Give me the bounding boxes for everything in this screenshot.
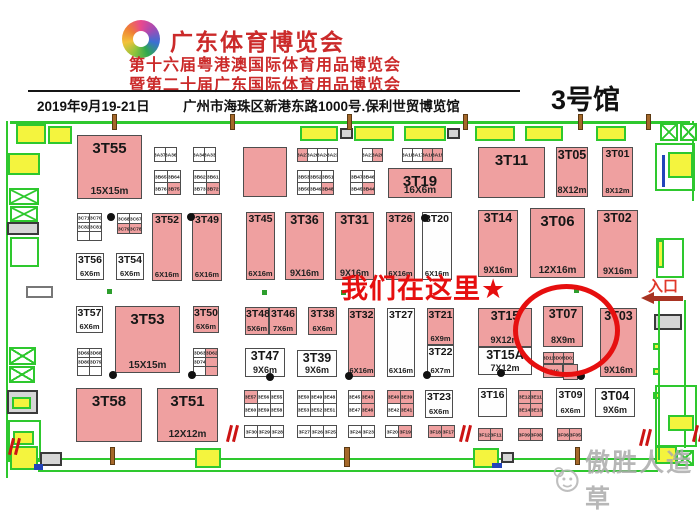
booth-label: 3T23 [426, 391, 452, 403]
booth-cell-3E46: 3E46 [361, 403, 375, 417]
booth-cell-3E48: 3E48 [323, 390, 337, 404]
booth-3T32: 3T326X16m [348, 308, 375, 377]
stairs-icon [680, 123, 697, 141]
booth-cell-3F17: 3F17 [441, 425, 455, 438]
booth-label: 3T14 [479, 211, 517, 225]
booth-cell-3E45: 3E45 [348, 390, 362, 404]
booth-size: 6X16m [247, 269, 274, 278]
booth-size: 6X6m [77, 322, 102, 331]
exit-door-icon [692, 424, 700, 444]
door-block [525, 126, 563, 141]
booth-size: 6X16m [388, 366, 414, 375]
booth-cell-group: 3A273A263A243A23 [297, 148, 337, 162]
utility-block [501, 452, 514, 463]
stairs-icon [10, 206, 38, 222]
booth-cell-3F30: 3F30 [244, 425, 258, 438]
booth-cell-3C78: 3C78 [129, 223, 142, 234]
booth-cell-group: 3F273F263F25 [297, 425, 336, 438]
booth-cell-3F27: 3F27 [297, 425, 311, 438]
booth-cell-3E56: 3E56 [257, 390, 271, 404]
booth-cell-3E41: 3E41 [400, 403, 414, 417]
exit-door-icon [8, 437, 22, 457]
room-outline [10, 237, 39, 267]
booth-label: 3T49 [193, 214, 221, 226]
pillar [112, 114, 117, 130]
booth-cell-3E40: 3E40 [387, 390, 401, 404]
column-dot [497, 369, 505, 377]
booth-label: 3T53 [116, 307, 179, 328]
booth-cell-3A36: 3A36 [165, 147, 177, 162]
booth-3T45: 3T456X16m [246, 212, 275, 280]
column-dot [345, 372, 353, 380]
watermark: 傲胜人造草 [552, 443, 700, 515]
booth-size: 9X6m [298, 365, 336, 375]
booth-label: 3T45 [247, 213, 274, 225]
booth-cell-3F08: 3F08 [530, 428, 543, 441]
booth-size: 6X16m [193, 270, 221, 279]
booth-cell-3B73: 3B73 [193, 182, 207, 195]
booth-size: 6X6m [309, 324, 336, 333]
booth-cell-group: 3F183F17 [428, 425, 454, 438]
column-dot [188, 371, 196, 379]
booth-3T23: 3T236X6m [425, 390, 453, 418]
pillar [230, 114, 235, 130]
booth-size: 6X16m [153, 270, 181, 279]
column-marker [262, 290, 267, 295]
booth-cell-3A15: 3A15 [432, 148, 443, 162]
booth-3T04: 3T049X6m [595, 388, 635, 417]
door-block [653, 368, 660, 375]
entrance-arrow-icon [641, 292, 683, 305]
booth-cell-group: 3D633D623D74 [193, 348, 217, 376]
booth-label: 3T58 [77, 389, 141, 410]
booth-3T39: 3T399X6m [297, 350, 337, 377]
booth-label: 3T57 [77, 307, 102, 319]
booth-label: 3T04 [596, 389, 634, 403]
booth-cell-3E59: 3E59 [257, 403, 271, 417]
column-dot [187, 213, 195, 221]
booth-cell-3F05: 3F05 [569, 428, 582, 441]
booth-3T52: 3T526X16m [152, 213, 182, 281]
booth-label: 3T02 [598, 211, 637, 225]
booth-3T09: 3T096X6m [556, 388, 585, 417]
door-block [653, 343, 660, 350]
booth-size: 6X6m [117, 269, 143, 278]
booth-cell-3E50: 3E50 [297, 390, 311, 404]
booth-size: 16X6m [389, 185, 451, 196]
booth-cell-group: 3A213A20 [362, 148, 382, 162]
door-block [195, 448, 221, 468]
expo-floorplan-page: 广东体育博览会 第十六届粤港澳国际体育用品博览会 暨第二十届广东国际体育用品博览… [0, 0, 700, 495]
door-block [657, 240, 664, 268]
pillar [646, 114, 651, 130]
booth-cell-group: 3B653B643B763B75 [154, 170, 180, 195]
booth-3T47: 3T479X6m [245, 348, 285, 377]
booth-cell-unlabeled [89, 231, 102, 241]
booth-cell-3F24: 3F24 [348, 425, 362, 438]
column-dot [107, 213, 115, 221]
entrance-arrow-shaft [653, 296, 683, 301]
booth-cell-3A20: 3A20 [372, 148, 383, 162]
booth-3T21: 3T216X9m [427, 308, 454, 345]
booth-cell-3F29: 3F29 [257, 425, 271, 438]
door-block [596, 126, 626, 141]
booth-cell-group: 3D693D683D803D79 [77, 348, 101, 376]
booth-size: 9X16m [601, 365, 636, 375]
booth-label: 3T39 [298, 351, 336, 365]
booth-cell-3E11: 3E11 [530, 390, 543, 404]
booth-size: 8X12m [557, 185, 587, 195]
booth-label: 3T26 [387, 213, 414, 225]
booth-3T05: 3T058X12m [556, 147, 588, 197]
booth-cell-group: 3E573E563E553E603E593E58 [244, 390, 283, 417]
booth-label: 3T52 [153, 214, 181, 226]
booth-cell-group: 3C713C703C823C81 [77, 213, 101, 241]
booth-label: 3T38 [309, 308, 336, 320]
floorplan: 我们在这里★ 入口 傲胜人造草 3T5515X15m3T113T058X12m3… [0, 0, 700, 495]
booth-cell-3E43: 3E43 [361, 390, 375, 404]
booth-label: 3T05 [557, 148, 587, 162]
booth-cell-group: 3E453E433E473E46 [348, 390, 374, 417]
booth-label: 3T54 [117, 254, 143, 266]
watermark-text: 傲胜人造草 [585, 443, 700, 515]
booth-cell-group: 3E503E493E483E533E523E51 [297, 390, 336, 417]
booth-cell-3F11: 3F11 [490, 428, 503, 441]
booth-cell-3F20: 3F20 [385, 425, 399, 438]
booth-cell-group: 3F303F293F28 [244, 425, 283, 438]
booth-3T55: 3T5515X15m [77, 135, 142, 199]
watermark-logo-icon [552, 462, 581, 496]
booth-size: 15X15m [116, 360, 179, 371]
booth-cell-group: 3F063F05 [557, 428, 581, 441]
booth-size: 8X12m [603, 186, 632, 195]
door-block [668, 152, 693, 178]
exit-door-icon [459, 424, 473, 444]
booth-label: 3T16 [479, 389, 506, 401]
booth-label: 3T32 [349, 309, 374, 321]
booth-cell-3E55: 3E55 [270, 390, 284, 404]
booth-3T02: 3T029X16m [597, 210, 638, 278]
booth-label: 3T46 [270, 308, 296, 320]
booth-cell-unlabeled [89, 366, 102, 376]
booth-3T58: 3T58 [76, 388, 142, 442]
booth-label: 3T51 [158, 389, 217, 410]
booth-3T36: 3T369X16m [285, 212, 324, 280]
booth-cell-3F19: 3F19 [398, 425, 412, 438]
booth-cell-group: 3B473B463B453B44 [350, 170, 374, 195]
booth-cell-group: 3E403E393E423E41 [387, 390, 413, 417]
utility-block [447, 128, 460, 139]
booth-3T19: 3T1916X6m [388, 168, 452, 198]
column-marker [107, 289, 112, 294]
booth-cell-3A23: 3A23 [327, 148, 338, 162]
booth-3T38: 3T386X6m [308, 307, 337, 335]
booth-cell-3E39: 3E39 [400, 390, 414, 404]
booth-label: 3T48 [246, 308, 268, 320]
booth-cell-3E60: 3E60 [244, 403, 258, 417]
booth-size: 5X6m [246, 324, 268, 333]
booth-label: 3T55 [78, 136, 141, 157]
booth-cell-3B48: 3B48 [321, 182, 334, 195]
booth-cell-3B72: 3B72 [206, 182, 220, 195]
column-dot [109, 371, 117, 379]
booth-cell-3F28: 3F28 [270, 425, 284, 438]
booth-cell-group: 3C683C673C793C78 [117, 213, 141, 234]
booth-label: 3T36 [286, 213, 323, 227]
we-are-here-label: 我们在这里★ [341, 267, 506, 306]
booth-unlabeled [243, 147, 287, 197]
booth-3T57: 3T576X6m [76, 306, 103, 333]
booth-size: 7X6m [270, 324, 296, 333]
entrance-arrow-head [641, 292, 654, 304]
booth-cell-3E51: 3E51 [323, 403, 337, 417]
booth-size: 6X6m [426, 407, 452, 416]
booth-label: 3T50 [194, 307, 218, 319]
booth-3T07-highlight-circle [513, 284, 620, 377]
column-dot [423, 371, 431, 379]
booth-size: 6X6m [557, 406, 584, 415]
booth-label: 3T27 [388, 309, 414, 321]
utility-block [34, 464, 43, 470]
door-block [8, 153, 40, 175]
pillar [463, 114, 468, 130]
booth-size: 9X16m [286, 268, 323, 278]
booth-3T06: 3T0612X16m [530, 208, 585, 278]
booth-cell-group: 3F123F11 [478, 428, 502, 441]
booth-size: 6X9m [428, 334, 453, 343]
utility-block [662, 155, 665, 187]
booth-label: 3T56 [77, 254, 103, 266]
booth-cell-3E42: 3E42 [387, 403, 401, 417]
booth-label: 3T47 [246, 349, 284, 363]
booth-label: 3T22 [428, 346, 453, 358]
booth-size: 15X15m [78, 186, 141, 197]
booth-3T01: 3T018X12m [602, 147, 633, 197]
booth-label: 3T06 [531, 209, 584, 230]
booth-cell-group: 3F093F08 [518, 428, 542, 441]
column-dot [266, 373, 274, 381]
utility-block [40, 452, 62, 466]
booth-3T54: 3T546X6m [116, 253, 144, 280]
booth-cell-3E52: 3E52 [310, 403, 324, 417]
booth-cell-unlabeled [205, 366, 218, 376]
booth-cell-3F18: 3F18 [428, 425, 442, 438]
door-block [668, 415, 694, 431]
booth-cell-group: 3B533B523B513B503B493B48 [297, 170, 333, 195]
utility-block [492, 463, 502, 468]
booth-cell-3F23: 3F23 [361, 425, 375, 438]
booth-size: 6X7m [428, 366, 453, 375]
booth-size: 9X6m [596, 405, 634, 415]
booth-cell-3B44: 3B44 [362, 182, 375, 195]
booth-3T22: 3T226X7m [427, 345, 454, 377]
booth-cell-3A33: 3A33 [204, 147, 216, 162]
booth-cell-3B76: 3B76 [154, 182, 168, 195]
booth-cell-3E47: 3E47 [348, 403, 362, 417]
booth-label: 3T11 [479, 148, 544, 169]
booth-cell-group: 3A343A33 [193, 147, 215, 162]
stairs-icon [9, 188, 39, 205]
booth-size: 9X6m [246, 365, 284, 375]
booth-3T48: 3T485X6m [245, 307, 269, 335]
booth-cell-group: 3F203F19 [385, 425, 411, 438]
booth-cell-3E53: 3E53 [297, 403, 311, 417]
door-block [404, 126, 446, 141]
door-block [48, 126, 72, 144]
booth-size: 9X16m [598, 266, 637, 276]
booth-3T27: 3T276X16m [387, 308, 415, 377]
column-dot [421, 214, 429, 222]
stairs-icon [660, 123, 678, 141]
booth-cell-3E13: 3E13 [530, 403, 543, 417]
booth-size: 7X12m [479, 363, 531, 373]
booth-cell-3F26: 3F26 [310, 425, 324, 438]
booth-3T51: 3T5112X12m [157, 388, 218, 442]
booth-label: 3T21 [428, 309, 453, 321]
booth-label: 3T09 [557, 389, 584, 401]
booth-cell-3F25: 3F25 [323, 425, 337, 438]
door-block [354, 126, 394, 141]
booth-3T11: 3T11 [478, 147, 545, 198]
booth-cell-group: 3B623B613B733B72 [193, 170, 219, 195]
booth-3T56: 3T566X6m [76, 253, 104, 280]
booth-label: 3T31 [336, 213, 373, 227]
booth-size: 6X6m [77, 269, 103, 278]
booth-size: 6X6m [194, 322, 218, 331]
booth-cell-group: 3E123E113E143E13 [518, 390, 542, 417]
booth-size: 12X16m [531, 265, 584, 276]
pillar [344, 447, 350, 467]
legend-box [26, 286, 53, 298]
booth-cell-3B75: 3B75 [167, 182, 181, 195]
pillar [110, 447, 115, 465]
booth-3T53: 3T5315X15m [115, 306, 180, 373]
pillar [578, 114, 583, 130]
door-block [300, 126, 338, 141]
door-block [12, 397, 31, 409]
booth-cell-3E49: 3E49 [310, 390, 324, 404]
booth-3T16: 3T16 [478, 388, 507, 417]
booth-cell-group: 3F243F23 [348, 425, 374, 438]
booth-cell-3E57: 3E57 [244, 390, 258, 404]
booth-cell-group: 3A183A173A163A15 [402, 148, 442, 162]
booth-cell-3E58: 3E58 [270, 403, 284, 417]
booth-label: 3T01 [603, 148, 632, 160]
booth-3T49: 3T496X16m [192, 213, 222, 281]
door-block [16, 124, 46, 144]
booth-3T50: 3T506X6m [193, 306, 219, 333]
pillar [347, 114, 352, 130]
stairs-icon [9, 347, 36, 365]
booth-3T46: 3T467X6m [269, 307, 297, 335]
booth-cell-group: 3A373A36 [154, 147, 176, 162]
stairs-icon [9, 366, 35, 383]
utility-block [7, 222, 39, 235]
door-block [475, 126, 515, 141]
booth-size: 12X12m [158, 429, 217, 440]
exit-door-icon [226, 424, 240, 444]
